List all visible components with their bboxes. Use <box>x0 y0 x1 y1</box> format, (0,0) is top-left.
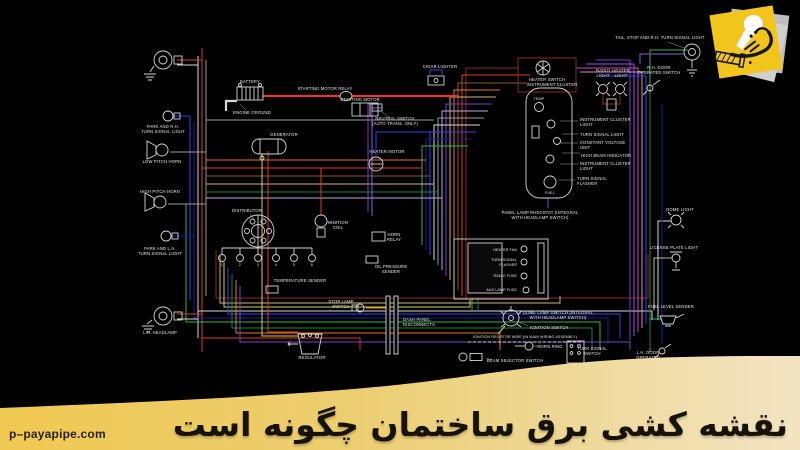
watermark-url: p–payapipe.com <box>9 427 106 441</box>
banner-swoosh <box>0 0 800 450</box>
payapipe-logo <box>700 2 795 87</box>
banner-title: نقشه کشی برق ساختمان چگونه است <box>173 405 788 444</box>
